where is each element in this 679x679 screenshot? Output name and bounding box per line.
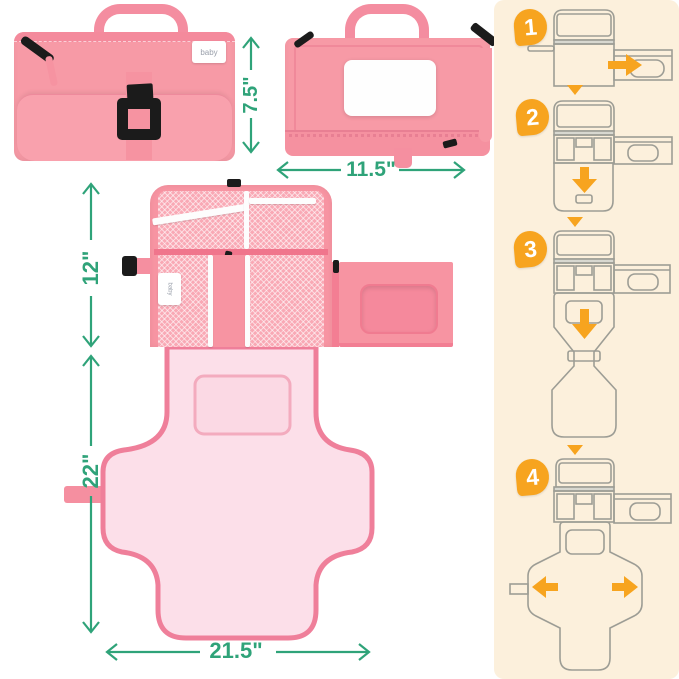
- brand-label-text: baby: [166, 282, 172, 295]
- unfold-right-arrow-icon: [608, 54, 642, 76]
- product-dimension-infographic: baby 7.5": [0, 0, 679, 679]
- step-3-drawing: [506, 229, 676, 443]
- pocket-trim: [208, 255, 213, 347]
- mat-width-label: 21.5": [200, 638, 272, 664]
- open-top-height-label: 12": [79, 238, 103, 298]
- wipes-window: [344, 60, 436, 116]
- wipes-opening: [360, 284, 438, 334]
- step-1-drawing: [506, 4, 676, 94]
- side-strap-buckle: [122, 256, 137, 276]
- center-strip: [212, 255, 246, 347]
- zipper-pull: [442, 138, 457, 148]
- wrist-strap: [479, 48, 492, 142]
- next-step-arrow-icon: [567, 217, 583, 227]
- buckle-frame: [117, 98, 161, 140]
- folded-clutch-view: baby: [14, 4, 236, 162]
- pocket-trim: [249, 198, 316, 204]
- pocket-panel: baby: [150, 185, 332, 347]
- folded-height-label: 7.5": [239, 65, 263, 125]
- step-2-drawing: [506, 97, 676, 215]
- folded-width-label: 11.5": [343, 157, 399, 183]
- back-body: [285, 38, 490, 154]
- mat-pillow: [195, 376, 290, 434]
- unfolding-steps-panel: 1 2: [494, 0, 679, 679]
- fold-zipper-band: [285, 130, 490, 156]
- zipper-teeth: [289, 134, 486, 137]
- back-view: [285, 4, 495, 166]
- next-step-arrow-icon: [567, 85, 583, 95]
- brand-label: baby: [192, 41, 226, 63]
- wing-zipper-edge: [332, 262, 339, 347]
- brand-label: baby: [158, 273, 181, 305]
- brand-label-text: baby: [200, 48, 217, 57]
- mat-height-label: 22": [79, 441, 103, 501]
- hanging-tab: [227, 179, 241, 187]
- unfold-right-arrow-icon: [612, 576, 638, 598]
- wing-body: [339, 262, 453, 347]
- next-step-arrow-icon: [567, 445, 583, 455]
- step-4-drawing: [506, 456, 679, 679]
- changing-mat: [55, 340, 475, 650]
- unfold-down-arrow-icon: [572, 167, 597, 193]
- wipes-wing: [332, 262, 453, 347]
- pocket-trim: [245, 255, 250, 347]
- unfold-left-arrow-icon: [532, 576, 558, 598]
- unfold-down-arrow-icon: [572, 309, 597, 339]
